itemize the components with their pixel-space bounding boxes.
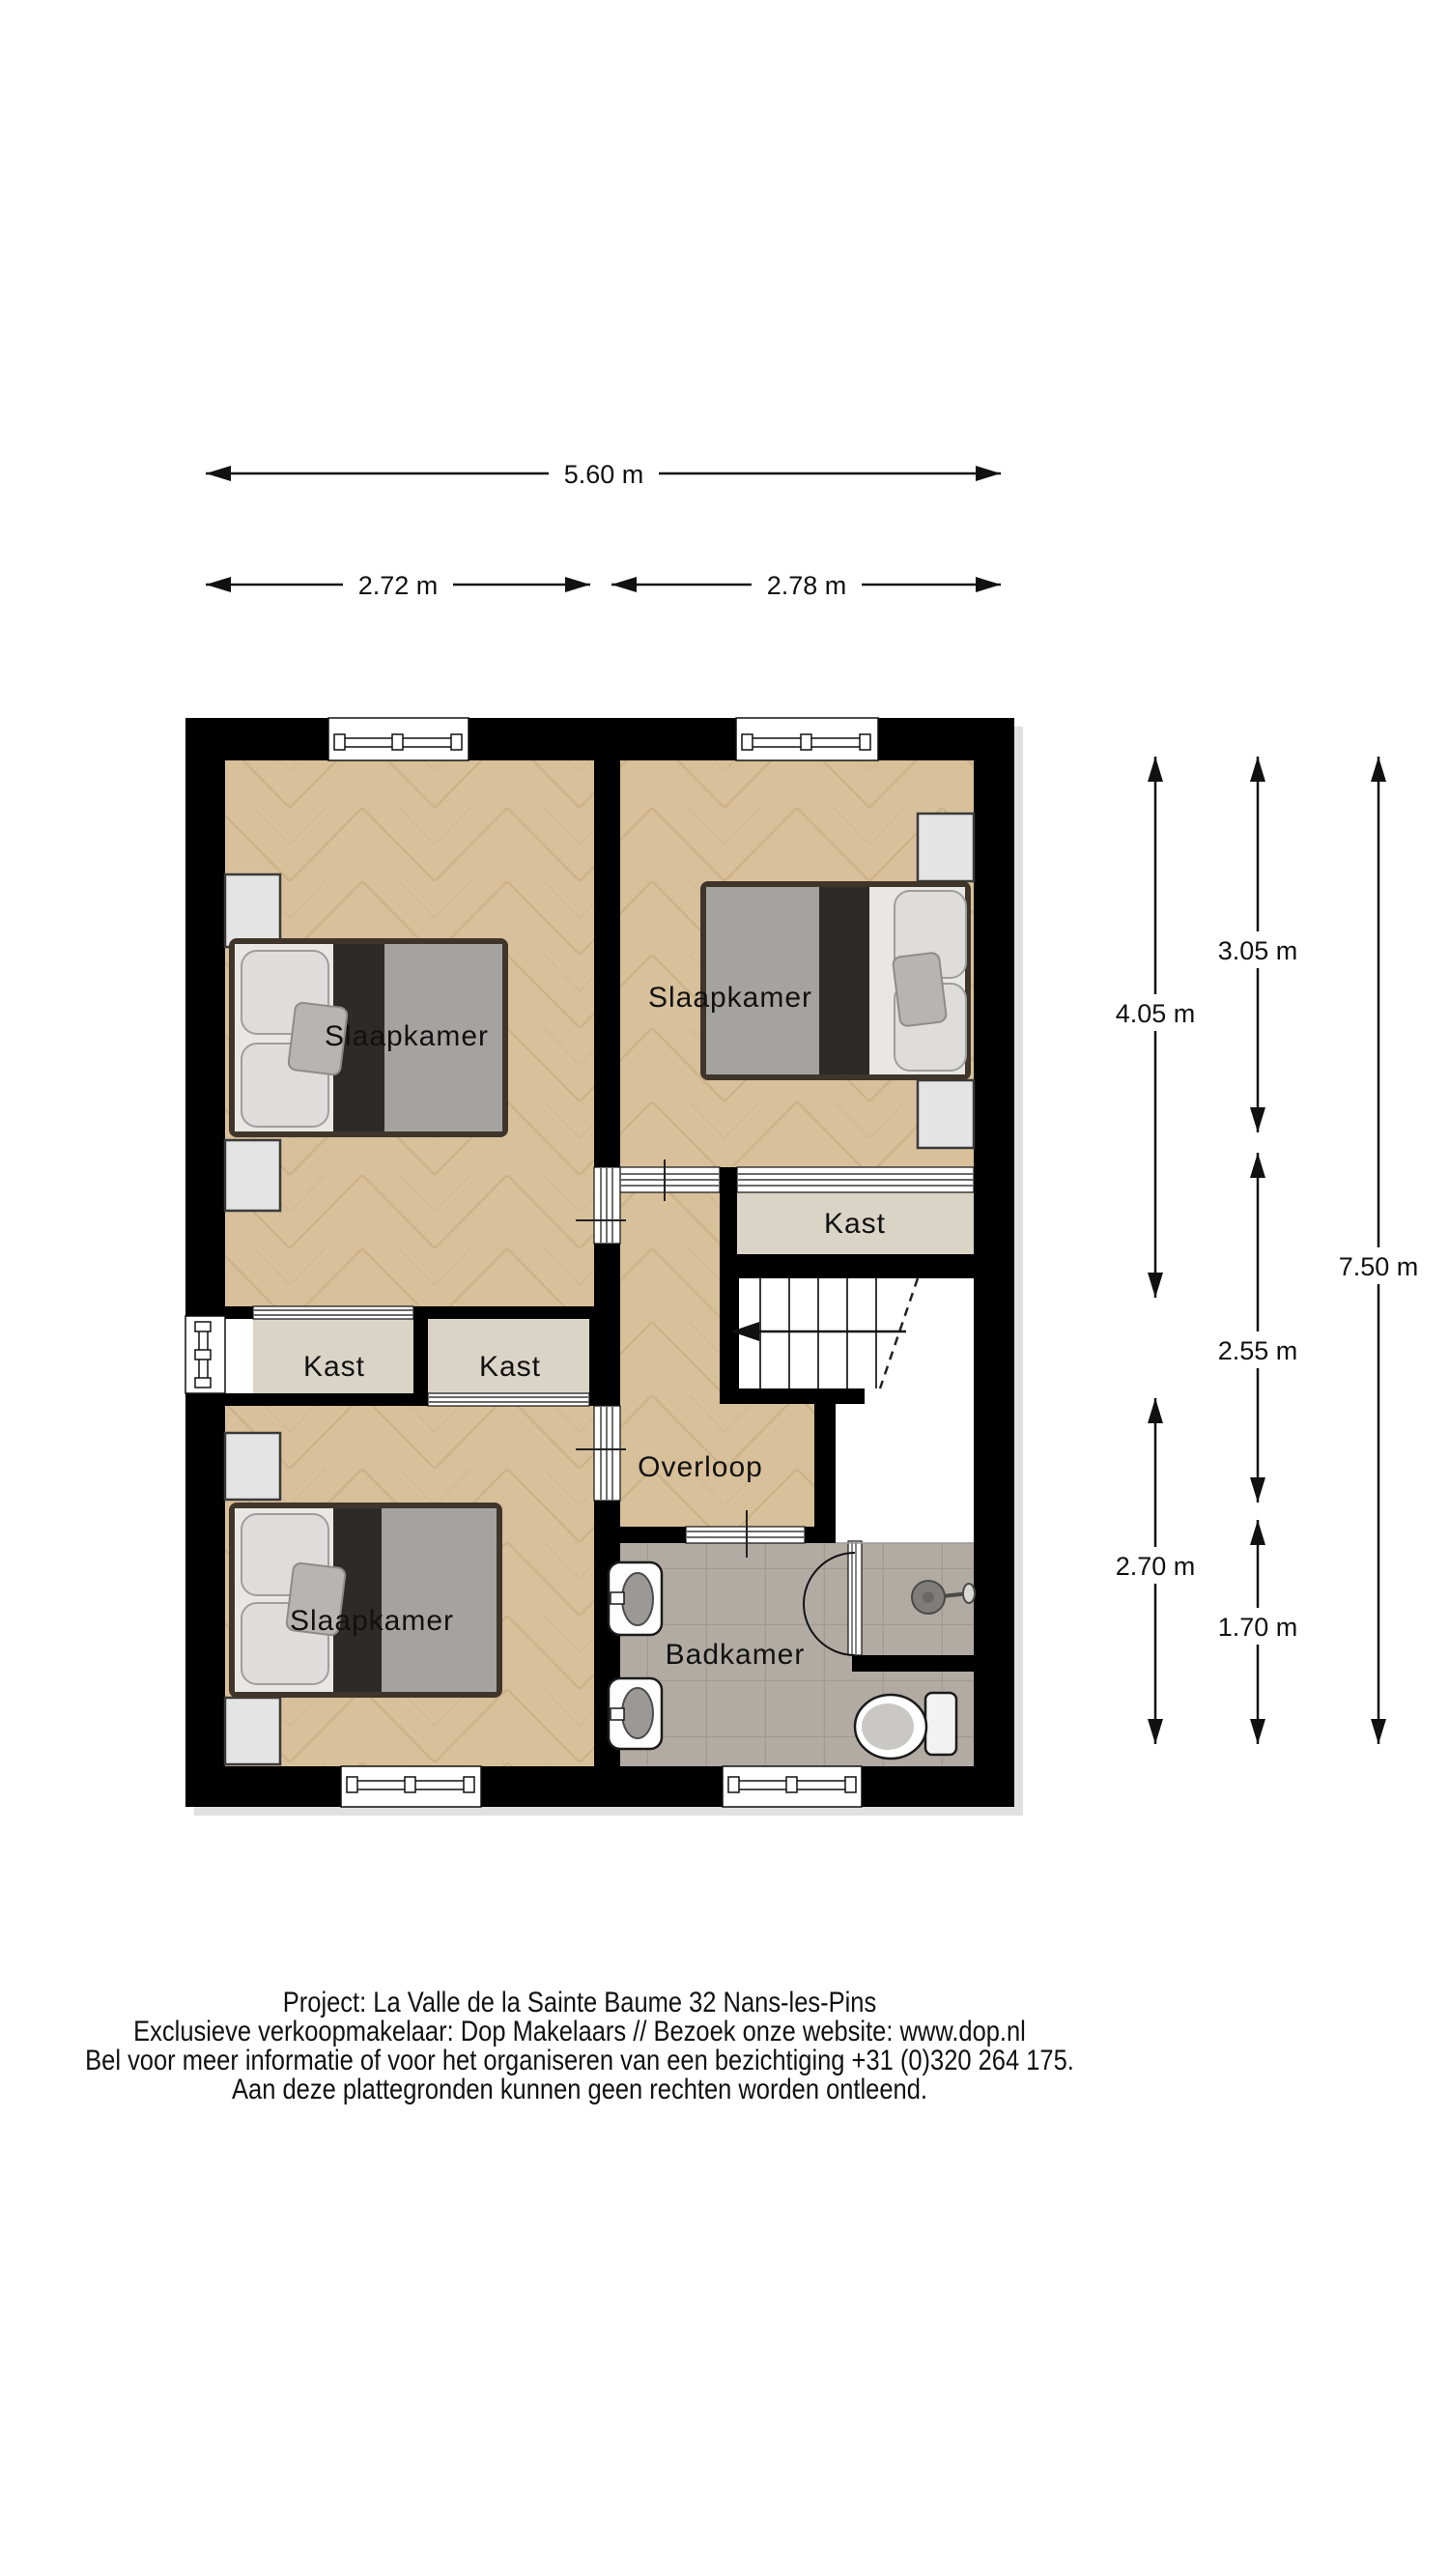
dim-top-left-label: 2.72 m	[358, 571, 439, 600]
dim-right-270-label: 2.70 m	[1116, 1552, 1196, 1581]
window-top-right	[736, 718, 878, 760]
sliding-door-kast-left	[253, 1306, 413, 1319]
arrowhead-down-icon	[1148, 1273, 1163, 1298]
dim-right-255-label: 2.55 m	[1218, 1336, 1298, 1365]
sliding-door-kast-middle	[428, 1393, 589, 1406]
dim-right-total: 7.50 m	[1323, 757, 1434, 1744]
toilet-icon	[855, 1693, 956, 1759]
dim-right-305-label: 3.05 m	[1218, 936, 1298, 965]
footer-line-1: Project: La Valle de la Sainte Baume 32 …	[283, 1986, 876, 2018]
sink-icon	[609, 1562, 662, 1635]
arrowhead-right-icon	[976, 466, 1001, 481]
arrowhead-up-icon	[1250, 1520, 1265, 1545]
dim-top-right: 2.78 m	[611, 566, 1001, 603]
niche	[225, 1698, 280, 1764]
sink-icon	[609, 1678, 662, 1749]
arrowhead-left-icon	[206, 577, 231, 592]
sliding-door-overloop	[620, 1167, 720, 1192]
sliding-door-badkamer	[686, 1527, 805, 1543]
floorplan-page: 5.60 m 2.72 m 2.78 m	[0, 0, 1449, 2576]
arrowhead-down-icon	[1371, 1719, 1386, 1744]
arrowhead-down-icon	[1250, 1477, 1265, 1503]
dim-right-255: 2.55 m	[1203, 1153, 1313, 1503]
arrowhead-up-icon	[1371, 757, 1386, 782]
niche	[918, 1080, 974, 1148]
shower-door-post	[848, 1541, 862, 1655]
room-label-overloop: Overloop	[638, 1451, 763, 1483]
niche	[225, 1433, 280, 1500]
window-bottom-left	[341, 1766, 481, 1807]
arrowhead-up-icon	[1250, 757, 1265, 782]
niche	[225, 1140, 280, 1211]
arrowhead-down-icon	[1148, 1719, 1163, 1744]
floor-plan: Slaapkamer Slaapkamer Slaapkamer Kast Ka…	[185, 718, 1023, 1816]
arrowhead-up-icon	[1250, 1153, 1265, 1178]
room-label-slaapkamer-bottom-left: Slaapkamer	[290, 1605, 454, 1637]
dim-right-270: 2.70 m	[1100, 1398, 1210, 1744]
room-label-kast-middle: Kast	[479, 1351, 541, 1383]
arrowhead-up-icon	[1148, 1398, 1163, 1423]
footer-line-3: Bel voor meer informatie of voor het org…	[85, 2044, 1074, 2075]
window-bottom-right	[723, 1766, 862, 1807]
footer-line-4: Aan deze plattegronden kunnen geen recht…	[232, 2073, 927, 2104]
sliding-door-kast-right	[737, 1167, 974, 1192]
arrowhead-right-icon	[565, 577, 590, 592]
dim-right-170: 1.70 m	[1203, 1520, 1313, 1744]
dim-top-total-label: 5.60 m	[564, 460, 644, 489]
dim-right-total-label: 7.50 m	[1339, 1252, 1419, 1281]
arrowhead-left-icon	[206, 466, 231, 481]
room-label-kast-right: Kast	[824, 1208, 886, 1240]
dimensions-right: 4.05 m 2.70 m 3.05 m 2.55 m	[1100, 757, 1434, 1744]
arrowhead-up-icon	[1148, 757, 1163, 782]
dim-top-total: 5.60 m	[206, 455, 1001, 492]
room-label-slaapkamer-top-right: Slaapkamer	[648, 982, 812, 1014]
arrowhead-down-icon	[1250, 1719, 1265, 1744]
sliding-door-bedroom-top-left	[594, 1167, 620, 1244]
dim-right-405: 4.05 m	[1100, 757, 1210, 1298]
bed-icon	[700, 881, 971, 1080]
window-top-left	[328, 718, 469, 760]
dim-top-right-label: 2.78 m	[767, 571, 847, 600]
dim-right-170-label: 1.70 m	[1218, 1613, 1298, 1642]
room-label-slaapkamer-top-left: Slaapkamer	[325, 1020, 489, 1052]
kast-left-reveal	[225, 1319, 253, 1393]
dim-right-405-label: 4.05 m	[1116, 999, 1196, 1028]
footer: Project: La Valle de la Sainte Baume 32 …	[85, 1986, 1074, 2104]
dim-top-left: 2.72 m	[206, 566, 590, 603]
arrowhead-right-icon	[976, 577, 1001, 592]
room-label-kast-left: Kast	[303, 1351, 365, 1383]
arrowhead-down-icon	[1250, 1107, 1265, 1132]
niche	[225, 874, 280, 947]
footer-line-2: Exclusieve verkoopmakelaar: Dop Makelaar…	[133, 2015, 1026, 2046]
window-left-wall	[185, 1316, 225, 1393]
arrowhead-left-icon	[611, 577, 637, 592]
bed-icon	[229, 1503, 502, 1698]
niche	[918, 814, 974, 881]
dimensions-top: 5.60 m 2.72 m 2.78 m	[206, 455, 1001, 603]
room-label-badkamer: Badkamer	[666, 1639, 806, 1671]
dim-right-305: 3.05 m	[1203, 757, 1313, 1132]
sliding-door-bedroom-bottom-left	[594, 1406, 620, 1501]
